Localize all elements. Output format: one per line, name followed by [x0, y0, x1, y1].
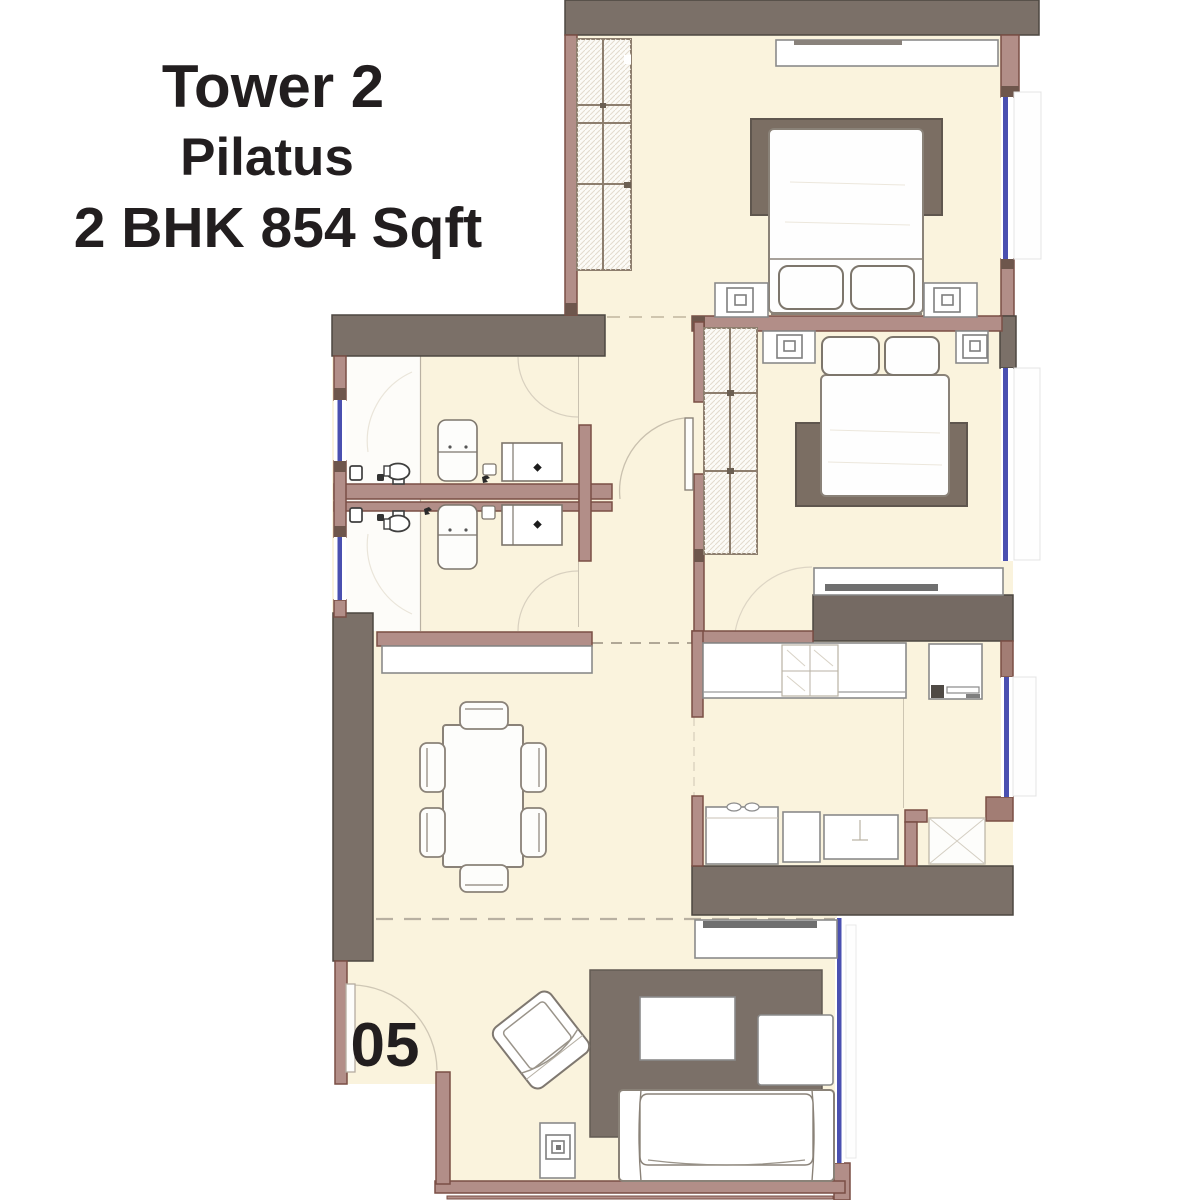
svg-text:Pilatus: Pilatus [180, 128, 354, 187]
svg-text:05: 05 [351, 1011, 420, 1080]
svg-text:Tower 2: Tower 2 [162, 53, 384, 120]
svg-text:2 BHK 854 Sqft: 2 BHK 854 Sqft [74, 196, 483, 260]
